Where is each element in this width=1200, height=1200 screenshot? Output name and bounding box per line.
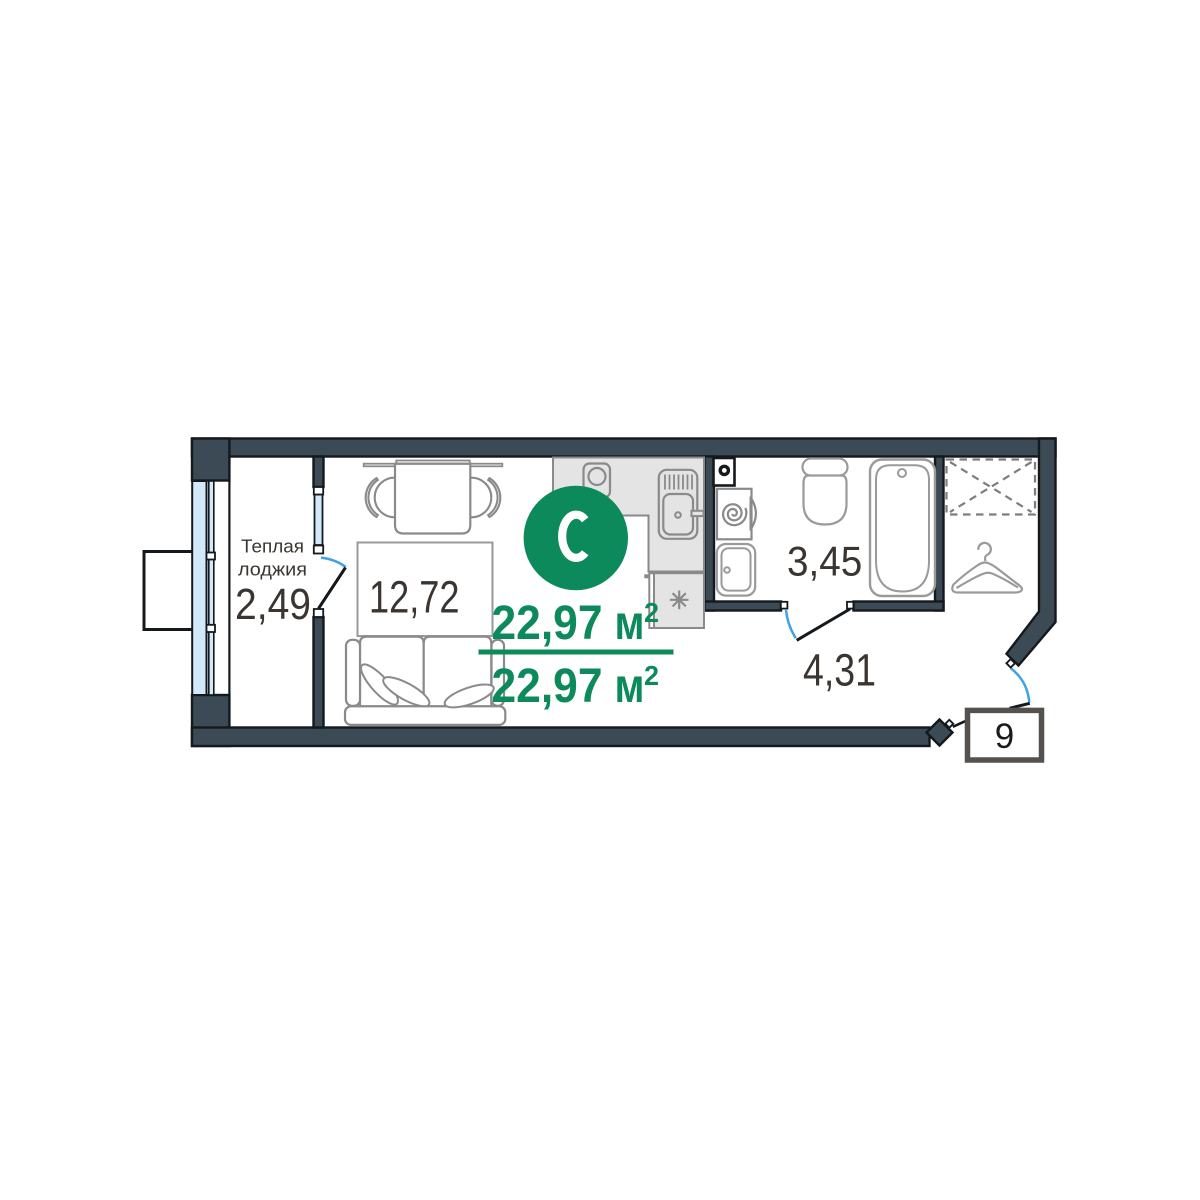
svg-text:22,97: 22,97	[492, 597, 603, 650]
svg-text:2: 2	[644, 660, 659, 691]
svg-text:9: 9	[995, 717, 1014, 756]
svg-text:3,45: 3,45	[787, 538, 862, 585]
svg-text:Теплая: Теплая	[241, 536, 304, 557]
svg-text:2: 2	[644, 597, 659, 628]
svg-text:4,31: 4,31	[803, 644, 876, 695]
svg-text:м: м	[615, 660, 645, 713]
svg-text:м: м	[615, 597, 645, 650]
svg-text:лоджия: лоджия	[238, 559, 307, 580]
svg-text:12,72: 12,72	[369, 572, 460, 623]
svg-text:22,97: 22,97	[492, 660, 603, 713]
svg-text:2,49: 2,49	[235, 580, 311, 629]
